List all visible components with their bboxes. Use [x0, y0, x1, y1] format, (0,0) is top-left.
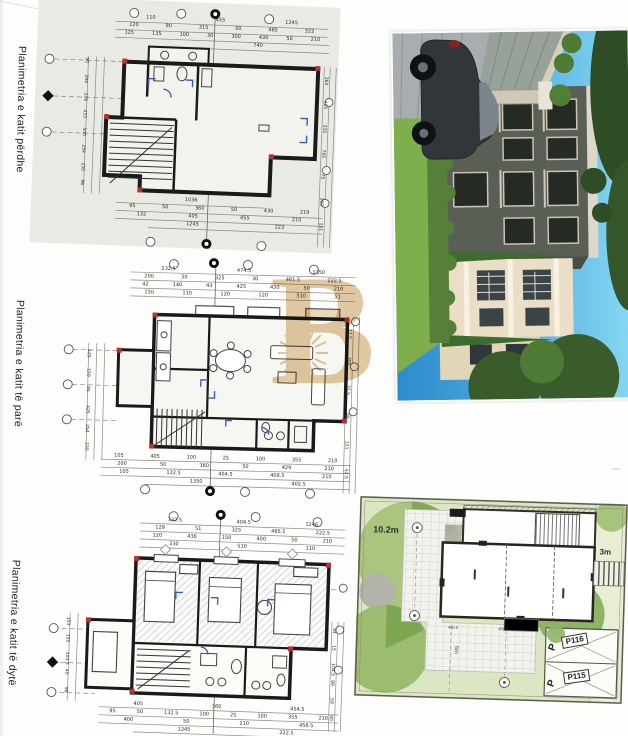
dim-number: 254 — [83, 424, 88, 434]
dim-number: 360 — [195, 206, 205, 211]
dim-number: 30 — [252, 277, 259, 282]
dim-number: 105 — [114, 454, 124, 459]
dim-number: 400 — [256, 537, 266, 542]
plan3-title: Planimetria e katit të dytë — [6, 560, 22, 686]
dim-number: 210 — [239, 722, 249, 727]
dim-number: 103 — [64, 616, 69, 626]
dim-number: 125 — [85, 349, 90, 359]
dim-number: 404.5 — [236, 520, 250, 525]
site-depth-label: 10.2m — [373, 524, 399, 535]
dim-number: 1350 — [312, 271, 325, 276]
dim-number: 500 — [80, 127, 85, 137]
dim-number: 1245 — [178, 727, 191, 732]
dim-number: 455 — [240, 216, 250, 221]
dim-number: 100 — [179, 33, 189, 38]
dim-number: 54 — [330, 627, 335, 637]
dim-number: 430 — [264, 209, 274, 214]
dim-number: 50 — [181, 275, 188, 280]
dim-number: 210 — [328, 459, 338, 464]
page-edge-artifact — [0, 0, 3, 736]
walls — [103, 45, 318, 197]
dim-number: 50 — [162, 205, 169, 210]
dim-number: 129 — [155, 526, 165, 531]
dim-number: 120 — [152, 533, 162, 538]
dim-number: 59 — [328, 697, 333, 707]
floor-plan-ground: 1104551245 1209031550485323 125135100303… — [29, 0, 340, 254]
dim-number: 132.5 — [164, 711, 178, 716]
dim-number: 104.5 — [329, 662, 334, 672]
page-edge-artifact — [612, 468, 620, 470]
floor-plan-first: 232.5474.51350 2005032530461.5222.5 4214… — [55, 254, 363, 500]
dim-number: 95 — [84, 386, 89, 396]
dim-number: 150 — [85, 368, 90, 378]
dim-number: 360 — [212, 705, 222, 710]
dim-number: 96 — [62, 687, 67, 697]
dim-number: 300 — [345, 357, 350, 367]
dim-number: 405 — [188, 214, 198, 219]
dim-number: 150 — [222, 536, 232, 541]
dim-number: 100 — [256, 457, 266, 462]
dim-number: 150 — [64, 634, 69, 644]
dim-number: 200 — [117, 462, 127, 467]
dim-number: 37.5 — [344, 385, 349, 395]
dim-number: 50 — [231, 208, 238, 213]
dim-number: 232.5 — [161, 267, 175, 272]
dim-number: 151 — [317, 222, 322, 232]
dim-number: 50 — [291, 538, 298, 543]
render-drawing — [392, 30, 628, 400]
dim-number: 1350 — [190, 480, 203, 485]
dim-number: 132.5 — [166, 471, 180, 476]
dim-number: 405 — [150, 454, 160, 459]
dim-number: 436 — [187, 535, 197, 540]
dim-number: 210 — [323, 539, 333, 544]
dim-number: 120 — [220, 292, 230, 297]
site-dim: 400.5 — [448, 625, 458, 630]
dim-number: 300 — [231, 35, 241, 40]
dim-number: 103.5 — [63, 651, 68, 661]
dim-number: 50 — [137, 710, 144, 715]
house-render-photo — [390, 28, 628, 402]
dim-number: 40 — [63, 669, 68, 679]
dim-number: 360 — [322, 76, 327, 86]
dim-number: 795 — [320, 149, 325, 159]
dim-number: 360 — [199, 464, 209, 469]
dim-number: 461.5 — [286, 278, 300, 283]
dim-number: 25 — [230, 713, 237, 718]
dim-number: 465.5 — [271, 530, 285, 535]
dim-number: 52.5 — [342, 469, 347, 479]
dim-number: 433 — [81, 109, 86, 119]
dim-number: 42 — [142, 282, 149, 287]
dim-number: 98 — [344, 413, 349, 423]
dim-number: 325 — [215, 276, 225, 281]
dim-number: 425 — [236, 285, 246, 290]
dim-number: 1245 — [186, 222, 199, 227]
dim-number: 51 — [195, 527, 202, 532]
dim-number: 210 — [322, 475, 332, 480]
dim-number: 330 — [169, 542, 179, 547]
dim-number: 50 — [242, 465, 249, 470]
dim-number: 50 — [235, 27, 242, 32]
dim-number: 50 — [303, 286, 310, 291]
dim-number: 510 — [296, 294, 306, 299]
dim-number: 110 — [306, 547, 316, 552]
site-walk-label: 6m — [452, 646, 458, 655]
dim-number: 355 — [292, 458, 302, 463]
dim-number: 456.5 — [299, 724, 313, 729]
dim-number: 429 — [282, 466, 292, 471]
plan2-title: Planimetria e katit të parë — [12, 300, 26, 427]
dim-number: 219 — [300, 210, 310, 215]
dim-number: 77.5 — [346, 329, 351, 339]
dim-number: 50 — [286, 37, 293, 42]
plan1-title: Planimetria e katit përdhe — [14, 46, 28, 173]
dim-number: 25 — [223, 456, 230, 461]
dim-number: 454.5 — [290, 707, 304, 712]
dim-number: 210 — [324, 467, 334, 472]
dim-number: 150 — [144, 290, 154, 295]
dim-number: 200 — [144, 274, 154, 279]
dim-number: 30 — [207, 34, 214, 39]
dim-number: 415 — [321, 101, 326, 111]
dim-number: 230 — [79, 162, 84, 172]
scanned-page: Planimetria e katit përdhe Planimetria e… — [0, 0, 628, 736]
dim-number: 100 — [186, 455, 196, 460]
dim-number: 75 — [319, 173, 324, 183]
dim-number: 474.5 — [237, 269, 251, 274]
dim-number: 455 — [216, 18, 226, 23]
dim-number: 402.5 — [291, 482, 305, 487]
dim-number: 100 — [257, 714, 267, 719]
dim-number: 222.5 — [327, 279, 341, 284]
dim-number: 50 — [160, 463, 167, 468]
dim-number: 510 — [237, 544, 247, 549]
dim-number: 315 — [199, 25, 209, 30]
dim-number: 125 — [124, 31, 134, 36]
dim-number: 105 — [119, 470, 129, 475]
site-offset-label: 3m — [599, 547, 611, 556]
dim-number: 50 — [183, 720, 190, 725]
dim-number: 210 — [311, 38, 321, 43]
dim-number: 95 — [109, 709, 116, 714]
dim-number: 90 — [83, 57, 88, 67]
dim-number: 323 — [305, 30, 315, 35]
dim-number: 400 — [123, 718, 133, 723]
dim-number: 378 — [82, 92, 87, 102]
dim-number: 230 — [83, 442, 88, 452]
dim-number: 335 — [320, 125, 325, 135]
site-plan: 10.2m 3m 6m 400.5 456.5 P116 P115 P P — [354, 496, 628, 704]
dim-number: 430 — [270, 286, 280, 291]
floor-plan-second: 132.5404.51246 12951325465.5222.5 120436… — [38, 500, 352, 736]
dim-number: 425 — [84, 405, 89, 415]
dim-number: 110 — [182, 291, 192, 296]
page-edge-artifact — [0, 0, 38, 9]
dim-number: 90 — [327, 715, 332, 725]
dim-number: 100 — [318, 198, 323, 208]
dim-number: 95 — [129, 204, 136, 209]
crosswalk — [594, 561, 625, 586]
dim-number: 51 — [334, 295, 341, 300]
dim-number: 90 — [165, 24, 172, 29]
dim-number: 210 — [334, 287, 344, 292]
dim-number: 430 — [259, 36, 269, 41]
dim-number: 355 — [288, 715, 298, 720]
dim-number: 151 — [343, 441, 348, 451]
dim-number: 110 — [146, 15, 156, 20]
dim-number: 210 — [292, 218, 302, 223]
dim-number: 222.5 — [279, 731, 293, 736]
dim-number: 405 — [133, 702, 143, 707]
dim-number: 100 — [199, 712, 209, 717]
dim-number: 1246 — [305, 523, 318, 528]
dim-number: 485 — [268, 28, 278, 33]
dim-number: 222.5 — [316, 531, 330, 536]
dim-number: 43 — [206, 284, 213, 289]
dim-number: 294 — [82, 74, 87, 84]
site-dim: 456.5 — [498, 626, 508, 631]
dim-number: 408.5 — [270, 474, 284, 479]
dim-number: 120 — [258, 293, 268, 298]
dim-number: 325 — [231, 528, 241, 533]
dim-number: 96 — [78, 179, 83, 189]
dim-number: 404.5 — [218, 472, 232, 477]
dim-number: 15 — [330, 645, 335, 655]
dim-number: 740 — [253, 44, 263, 49]
dim-number: 132 — [137, 212, 147, 217]
dim-number: 99 — [328, 680, 333, 690]
dim-number: 120 — [129, 23, 139, 28]
dim-number: 135 — [152, 32, 162, 37]
house-render-scene — [392, 30, 628, 400]
dim-number: 140 — [173, 283, 183, 288]
dim-number: 254 — [80, 144, 85, 154]
dim-number: 132.5 — [168, 518, 182, 523]
dim-number: 1036 — [185, 198, 198, 203]
dim-number: 1245 — [285, 21, 298, 26]
dim-number: 223 — [275, 226, 285, 231]
